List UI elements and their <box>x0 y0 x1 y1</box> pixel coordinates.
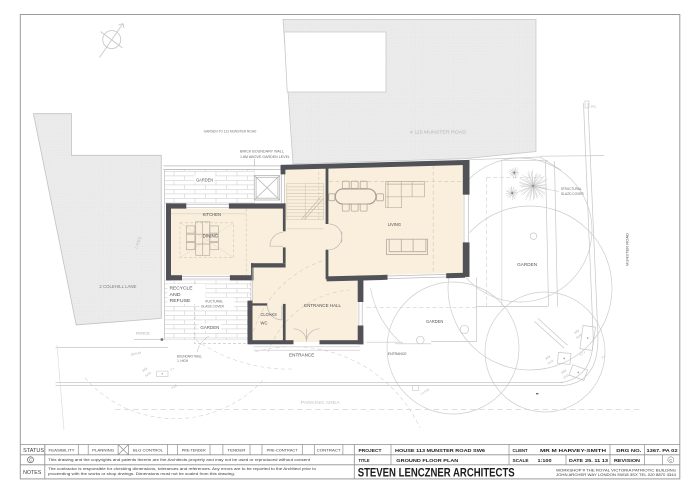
svg-text:DINING: DINING <box>203 233 219 238</box>
svg-text:1.8M ABOVE GARDEN LEVEL: 1.8M ABOVE GARDEN LEVEL <box>240 155 290 159</box>
svg-text:CONTRACT: CONTRACT <box>317 449 342 453</box>
svg-text:GARDEN: GARDEN <box>200 325 219 330</box>
svg-text:# 115 MUNSTER ROAD: # 115 MUNSTER ROAD <box>410 130 466 135</box>
svg-text:2 COLEHILL LANE: 2 COLEHILL LANE <box>99 284 136 289</box>
svg-text:BLG CONTROL: BLG CONTROL <box>133 449 163 453</box>
svg-text:HOUSE 113 MUNSTER ROAD SW6: HOUSE 113 MUNSTER ROAD SW6 <box>395 448 486 453</box>
svg-text:REVISION: REVISION <box>614 458 640 463</box>
svg-text:GLASS COVER: GLASS COVER <box>201 304 224 308</box>
svg-text:JOHN ARCHER WAY LONDON SW1: JOHN ARCHER WAY LONDON SW18 3SX TEL 020 … <box>556 473 676 477</box>
svg-text:ENTRANCE HALL: ENTRANCE HALL <box>304 303 342 308</box>
svg-text:PRE-TENDER: PRE-TENDER <box>182 449 206 453</box>
svg-text:STEVEN LENCZNER ARCHITECTS: STEVEN LENCZNER ARCHITECTS <box>358 468 515 480</box>
svg-text:1367. PA 02: 1367. PA 02 <box>647 448 679 453</box>
svg-text:REFUSE: REFUSE <box>170 298 191 303</box>
svg-text:STATUS: STATUS <box>23 448 44 454</box>
svg-text:STRUCTURAL: STRUCTURAL <box>561 187 582 191</box>
svg-text:GARDEN TO 113 MUNSTER ROAD: GARDEN TO 113 MUNSTER ROAD <box>204 129 257 133</box>
svg-text:ENTRANCE: ENTRANCE <box>388 352 407 356</box>
svg-text:MUNSTER ROAD: MUNSTER ROAD <box>625 233 630 266</box>
svg-text:C: C <box>29 458 32 463</box>
svg-text:This drawing and the copyright: This drawing and the copyrights and pate… <box>48 458 311 462</box>
svg-text:GLAZD COVER: GLAZD COVER <box>561 192 584 196</box>
svg-text:WC: WC <box>261 321 268 326</box>
svg-text:PG: PG <box>591 105 596 109</box>
svg-text:PROJECT: PROJECT <box>359 448 382 453</box>
svg-text:CLOAKS: CLOAKS <box>261 312 277 317</box>
svg-text:The contractor is responsible: The contractor is responsible for checki… <box>48 467 316 471</box>
svg-text:PRE-CONTRACT: PRE-CONTRACT <box>267 449 299 453</box>
svg-text:KITCHEN: KITCHEN <box>203 212 221 217</box>
svg-text:ENTRANCE: ENTRANCE <box>289 352 314 357</box>
svg-text:DATE: DATE <box>569 458 583 463</box>
svg-text:25. 11 13: 25. 11 13 <box>585 458 609 463</box>
svg-text:RECYCLE: RECYCLE <box>170 286 193 291</box>
svg-text:GARDEN: GARDEN <box>426 319 443 324</box>
svg-text:C: C <box>669 458 672 462</box>
svg-text:FEASIBILITY: FEASIBILITY <box>49 449 76 453</box>
svg-text:AND: AND <box>170 292 182 297</box>
svg-text:NOTES: NOTES <box>23 470 42 476</box>
svg-text:PARKING AREA: PARKING AREA <box>301 400 340 405</box>
svg-text:GARDEN: GARDEN <box>196 178 213 183</box>
svg-text:1. HIGH: 1. HIGH <box>177 359 188 363</box>
svg-text:proceeding with the works or s: proceeding with the works or shop drwing… <box>48 472 235 476</box>
svg-text:LIVING: LIVING <box>388 222 402 227</box>
svg-text:BRICK BOUNDARY WALL: BRICK BOUNDARY WALL <box>240 150 284 154</box>
svg-text:GROUND FLOOR PLAN: GROUND FLOOR PLAN <box>396 458 458 463</box>
svg-text:TENDER: TENDER <box>227 449 245 453</box>
svg-text:CLIENT: CLIENT <box>513 448 528 453</box>
svg-text:FENCE: FENCE <box>136 331 151 335</box>
svg-text:SCALE: SCALE <box>513 458 529 463</box>
svg-text:BOUNDARY WALL: BOUNDARY WALL <box>177 355 202 359</box>
svg-text:DRG NO.: DRG NO. <box>616 448 641 453</box>
svg-text:1:100: 1:100 <box>538 458 553 463</box>
svg-text:PLANNING: PLANNING <box>92 449 114 453</box>
svg-text:WORKSHOP # THE ROYAL VICTORI: WORKSHOP # THE ROYAL VICTORIA PATRIOTIC … <box>556 468 677 472</box>
svg-text:TITLE: TITLE <box>359 458 370 463</box>
svg-text:MR M HARVEY-SMITH: MR M HARVEY-SMITH <box>540 448 606 453</box>
svg-text:GARDEN: GARDEN <box>517 262 537 267</box>
